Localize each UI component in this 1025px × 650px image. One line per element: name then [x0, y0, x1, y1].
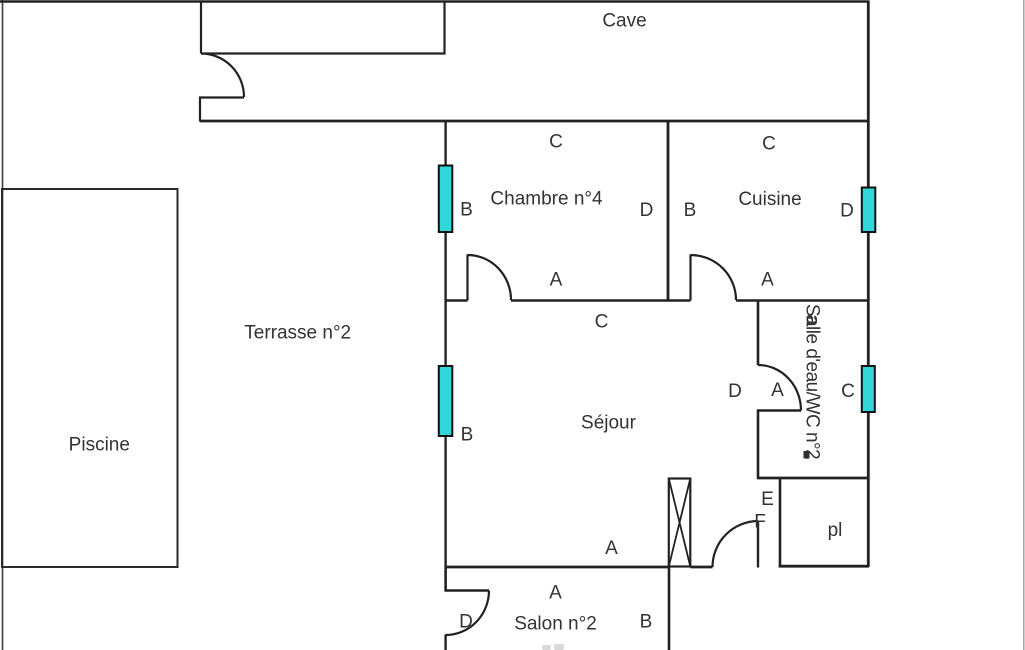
svg-text:B: B [640, 612, 653, 633]
svg-text:pl: pl [828, 520, 843, 541]
svg-text:B: B [460, 200, 473, 221]
svg-text:C: C [549, 132, 563, 153]
svg-text:C: C [841, 381, 855, 402]
svg-text:C: C [595, 312, 609, 333]
svg-text:A: A [605, 538, 618, 559]
svg-text:Séjour: Séjour [581, 412, 637, 433]
svg-text:B: B [684, 200, 697, 221]
svg-text:A: A [771, 380, 784, 401]
svg-text:A: A [761, 270, 774, 291]
svg-text:D: D [840, 201, 854, 222]
svg-text:Piscine: Piscine [69, 435, 130, 456]
svg-text:A: A [550, 270, 563, 291]
svg-text:D: D [640, 200, 654, 221]
svg-text:Cave: Cave [602, 11, 646, 32]
svg-text:D: D [459, 612, 473, 633]
svg-text:A: A [549, 583, 562, 604]
svg-text:F: F [754, 512, 766, 533]
svg-text:D: D [728, 381, 742, 402]
svg-text:Salon n°2: Salon n°2 [514, 614, 597, 635]
svg-text:Cuisine: Cuisine [738, 189, 801, 210]
svg-text:Chambre n°4: Chambre n°4 [490, 189, 603, 210]
svg-text:Salle d'eau/WC n°2: Salle d'eau/WC n°2 [802, 304, 823, 459]
svg-text:C: C [762, 134, 776, 155]
svg-text:Terrasse n°2: Terrasse n°2 [244, 322, 351, 343]
svg-text:E: E [761, 489, 774, 510]
svg-text:B: B [461, 425, 474, 446]
svg-text:a: a [802, 314, 823, 325]
